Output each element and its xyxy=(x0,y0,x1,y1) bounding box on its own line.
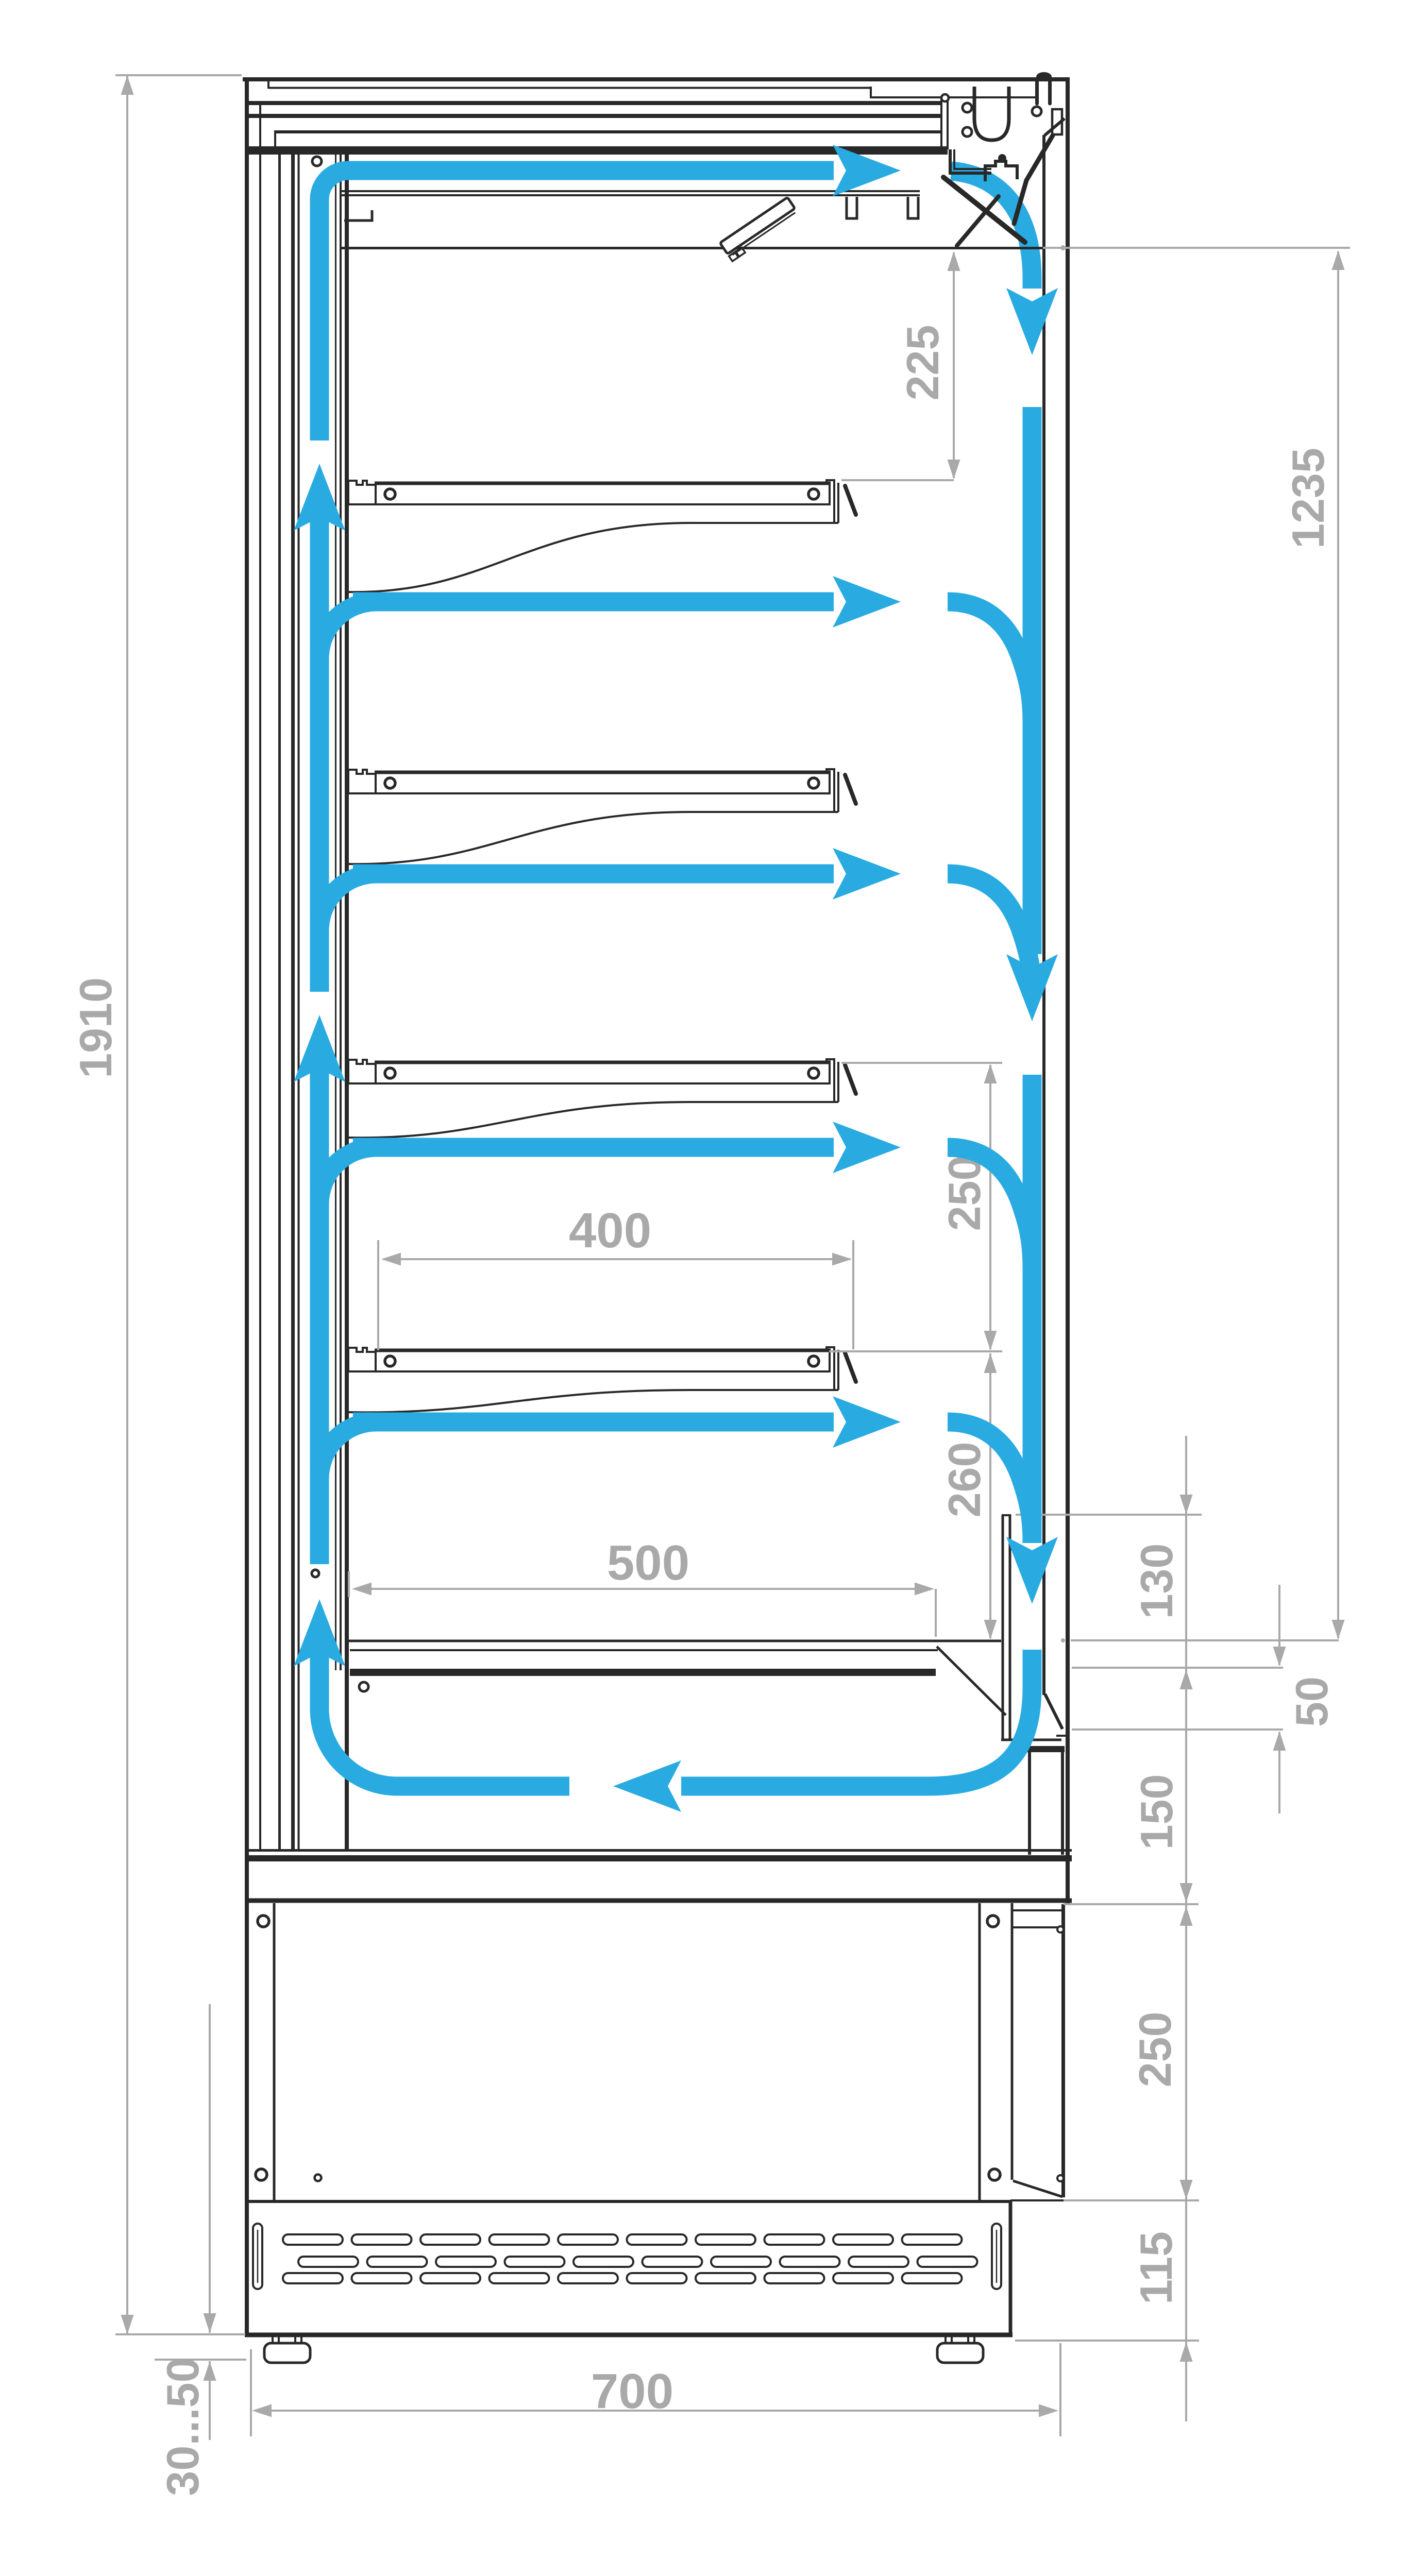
svg-text:50: 50 xyxy=(1286,1676,1337,1727)
svg-text:1235: 1235 xyxy=(1283,448,1334,549)
svg-text:130: 130 xyxy=(1131,1544,1182,1619)
svg-text:150: 150 xyxy=(1131,1774,1182,1850)
svg-text:115: 115 xyxy=(1131,2231,1182,2304)
svg-text:400: 400 xyxy=(569,1203,651,1258)
svg-text:30...50: 30...50 xyxy=(157,2357,208,2496)
svg-text:250: 250 xyxy=(1129,2012,1180,2088)
svg-text:260: 260 xyxy=(939,1442,990,1518)
svg-text:500: 500 xyxy=(607,1535,689,1590)
svg-text:250: 250 xyxy=(939,1156,990,1231)
svg-text:1910: 1910 xyxy=(70,977,121,1078)
svg-text:225: 225 xyxy=(897,325,948,401)
svg-text:700: 700 xyxy=(591,2364,673,2419)
